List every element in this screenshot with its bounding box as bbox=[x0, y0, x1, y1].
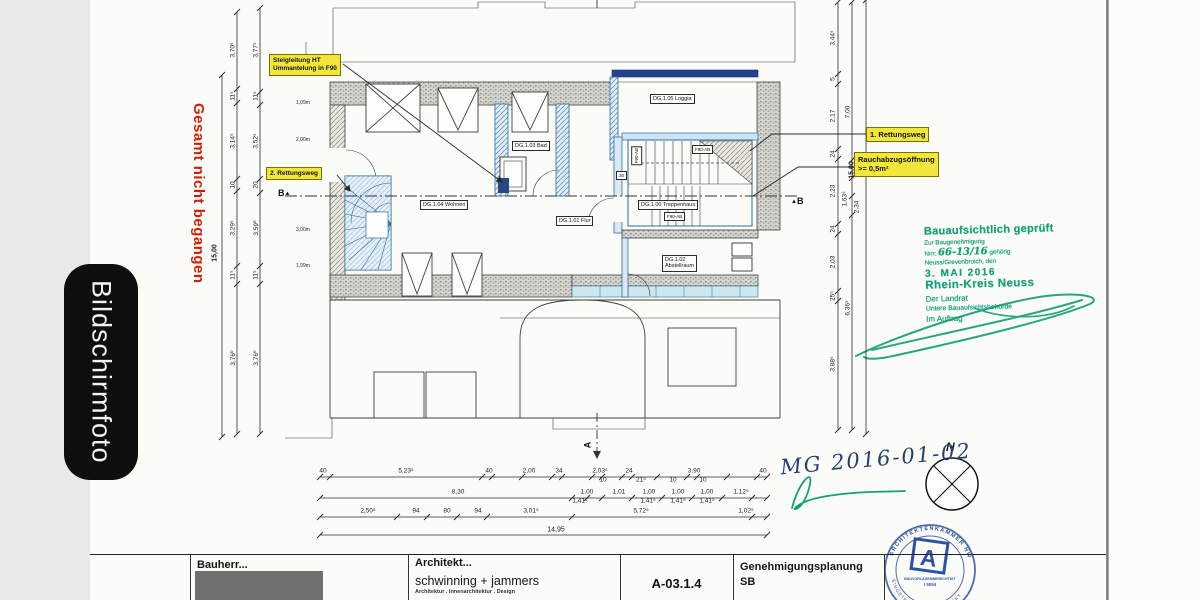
sill-label: 1,09m bbox=[296, 100, 310, 106]
screenshot-badge: Bildschirmfoto bbox=[64, 264, 138, 480]
annotation-rettungsweg-2: 2. Rettungsweg bbox=[266, 167, 322, 180]
titleblock-divider bbox=[190, 554, 191, 600]
section-marker-b-right: ▲B bbox=[791, 196, 803, 206]
titleblock-bauherr-label: Bauherr... bbox=[197, 559, 248, 571]
fire-rating-label: F90-AB bbox=[692, 145, 713, 154]
inspection-warning-text: Gesamt nicht begangen bbox=[190, 103, 207, 284]
room-label-wohnen: DG.1.04 Wohnen bbox=[420, 200, 468, 210]
sill-label: 1,09m bbox=[296, 263, 310, 269]
reviewer-initials-signature bbox=[792, 477, 905, 509]
room-label-loggia: DG.1.05 Loggia bbox=[650, 94, 695, 104]
redacted-client-name bbox=[195, 571, 323, 600]
triangle-icon: ▲ bbox=[285, 191, 291, 197]
fire-rating-label: F90-AB bbox=[631, 146, 642, 165]
svg-text:I 5094: I 5094 bbox=[924, 582, 937, 587]
annotation-rettungsweg-1: 1. Rettungsweg bbox=[866, 127, 929, 142]
approval-stamp: Bauaufsichtlich geprüft Zur Baugenehmigu… bbox=[924, 222, 1056, 324]
room-name: Abstellraum bbox=[665, 263, 694, 269]
spiral-stair bbox=[345, 176, 391, 270]
annotation-line: Steigleitung HT bbox=[273, 57, 337, 65]
plan-phase-code: SB bbox=[740, 576, 755, 588]
sill-label: 2,00m bbox=[296, 137, 310, 143]
annotation-rauchabzug: Rauchabzugsöffnung >= 0,5m² bbox=[854, 152, 939, 177]
sill-label: 3,00m bbox=[296, 227, 310, 233]
section-marker-b-left: B▲ bbox=[278, 188, 290, 198]
section-marker-a: A bbox=[582, 442, 592, 449]
door-width-label: 30 bbox=[616, 171, 627, 180]
titleblock-divider bbox=[733, 554, 734, 600]
annotation-line: Rauchabzugsöffnung bbox=[858, 155, 935, 165]
dimension-chains bbox=[219, 0, 869, 538]
architect-seal: ARCHITEKTENKAMMER NW EINGETRAGENER ARCHI… bbox=[885, 525, 975, 600]
titleblock-border bbox=[90, 554, 1106, 555]
plan-phase: Genehmigungsplanung bbox=[740, 561, 863, 573]
annotation-line: >= 0,5m² bbox=[858, 164, 935, 174]
annotation-line: Ummantelung in F90 bbox=[273, 65, 337, 73]
room-label-flur: DG.1.01 Flur bbox=[556, 216, 593, 226]
titleblock-architekt-label: Architekt... bbox=[415, 557, 472, 569]
titleblock-divider bbox=[408, 554, 409, 600]
architect-firm-name: schwinning + jammers bbox=[415, 574, 539, 588]
screenshot-badge-label: Bildschirmfoto bbox=[86, 280, 117, 464]
sheet-number: A-03.1.4 bbox=[620, 576, 733, 591]
lower-storey-outline bbox=[285, 300, 780, 438]
handwritten-file-number: 66-13/16 bbox=[938, 246, 988, 258]
svg-text:BAUVORLAGENBERECHTIGT: BAUVORLAGENBERECHTIGT bbox=[904, 577, 956, 581]
room-label-abstellraum: DG.1.02 Abstellraum bbox=[662, 255, 697, 272]
room-label-treppenhaus: DG.1.00 Treppenhaus bbox=[638, 200, 698, 210]
page-margin bbox=[1109, 0, 1200, 600]
svg-text:A: A bbox=[919, 544, 939, 572]
architect-firm-subtitle: Architektur . Innenarchitektur . Design bbox=[415, 589, 515, 595]
annotation-steigleitung: Steigleitung HT Ummantelung in F90 bbox=[269, 54, 341, 76]
fire-rating-label: F90-AB bbox=[664, 212, 685, 221]
stamp-authority: Rhein-Kreis Neuss bbox=[925, 276, 1055, 293]
room-label-bad: DG.1.03 Bad bbox=[512, 141, 550, 151]
titleblock-divider bbox=[884, 554, 885, 600]
roof-outline bbox=[306, 2, 795, 62]
